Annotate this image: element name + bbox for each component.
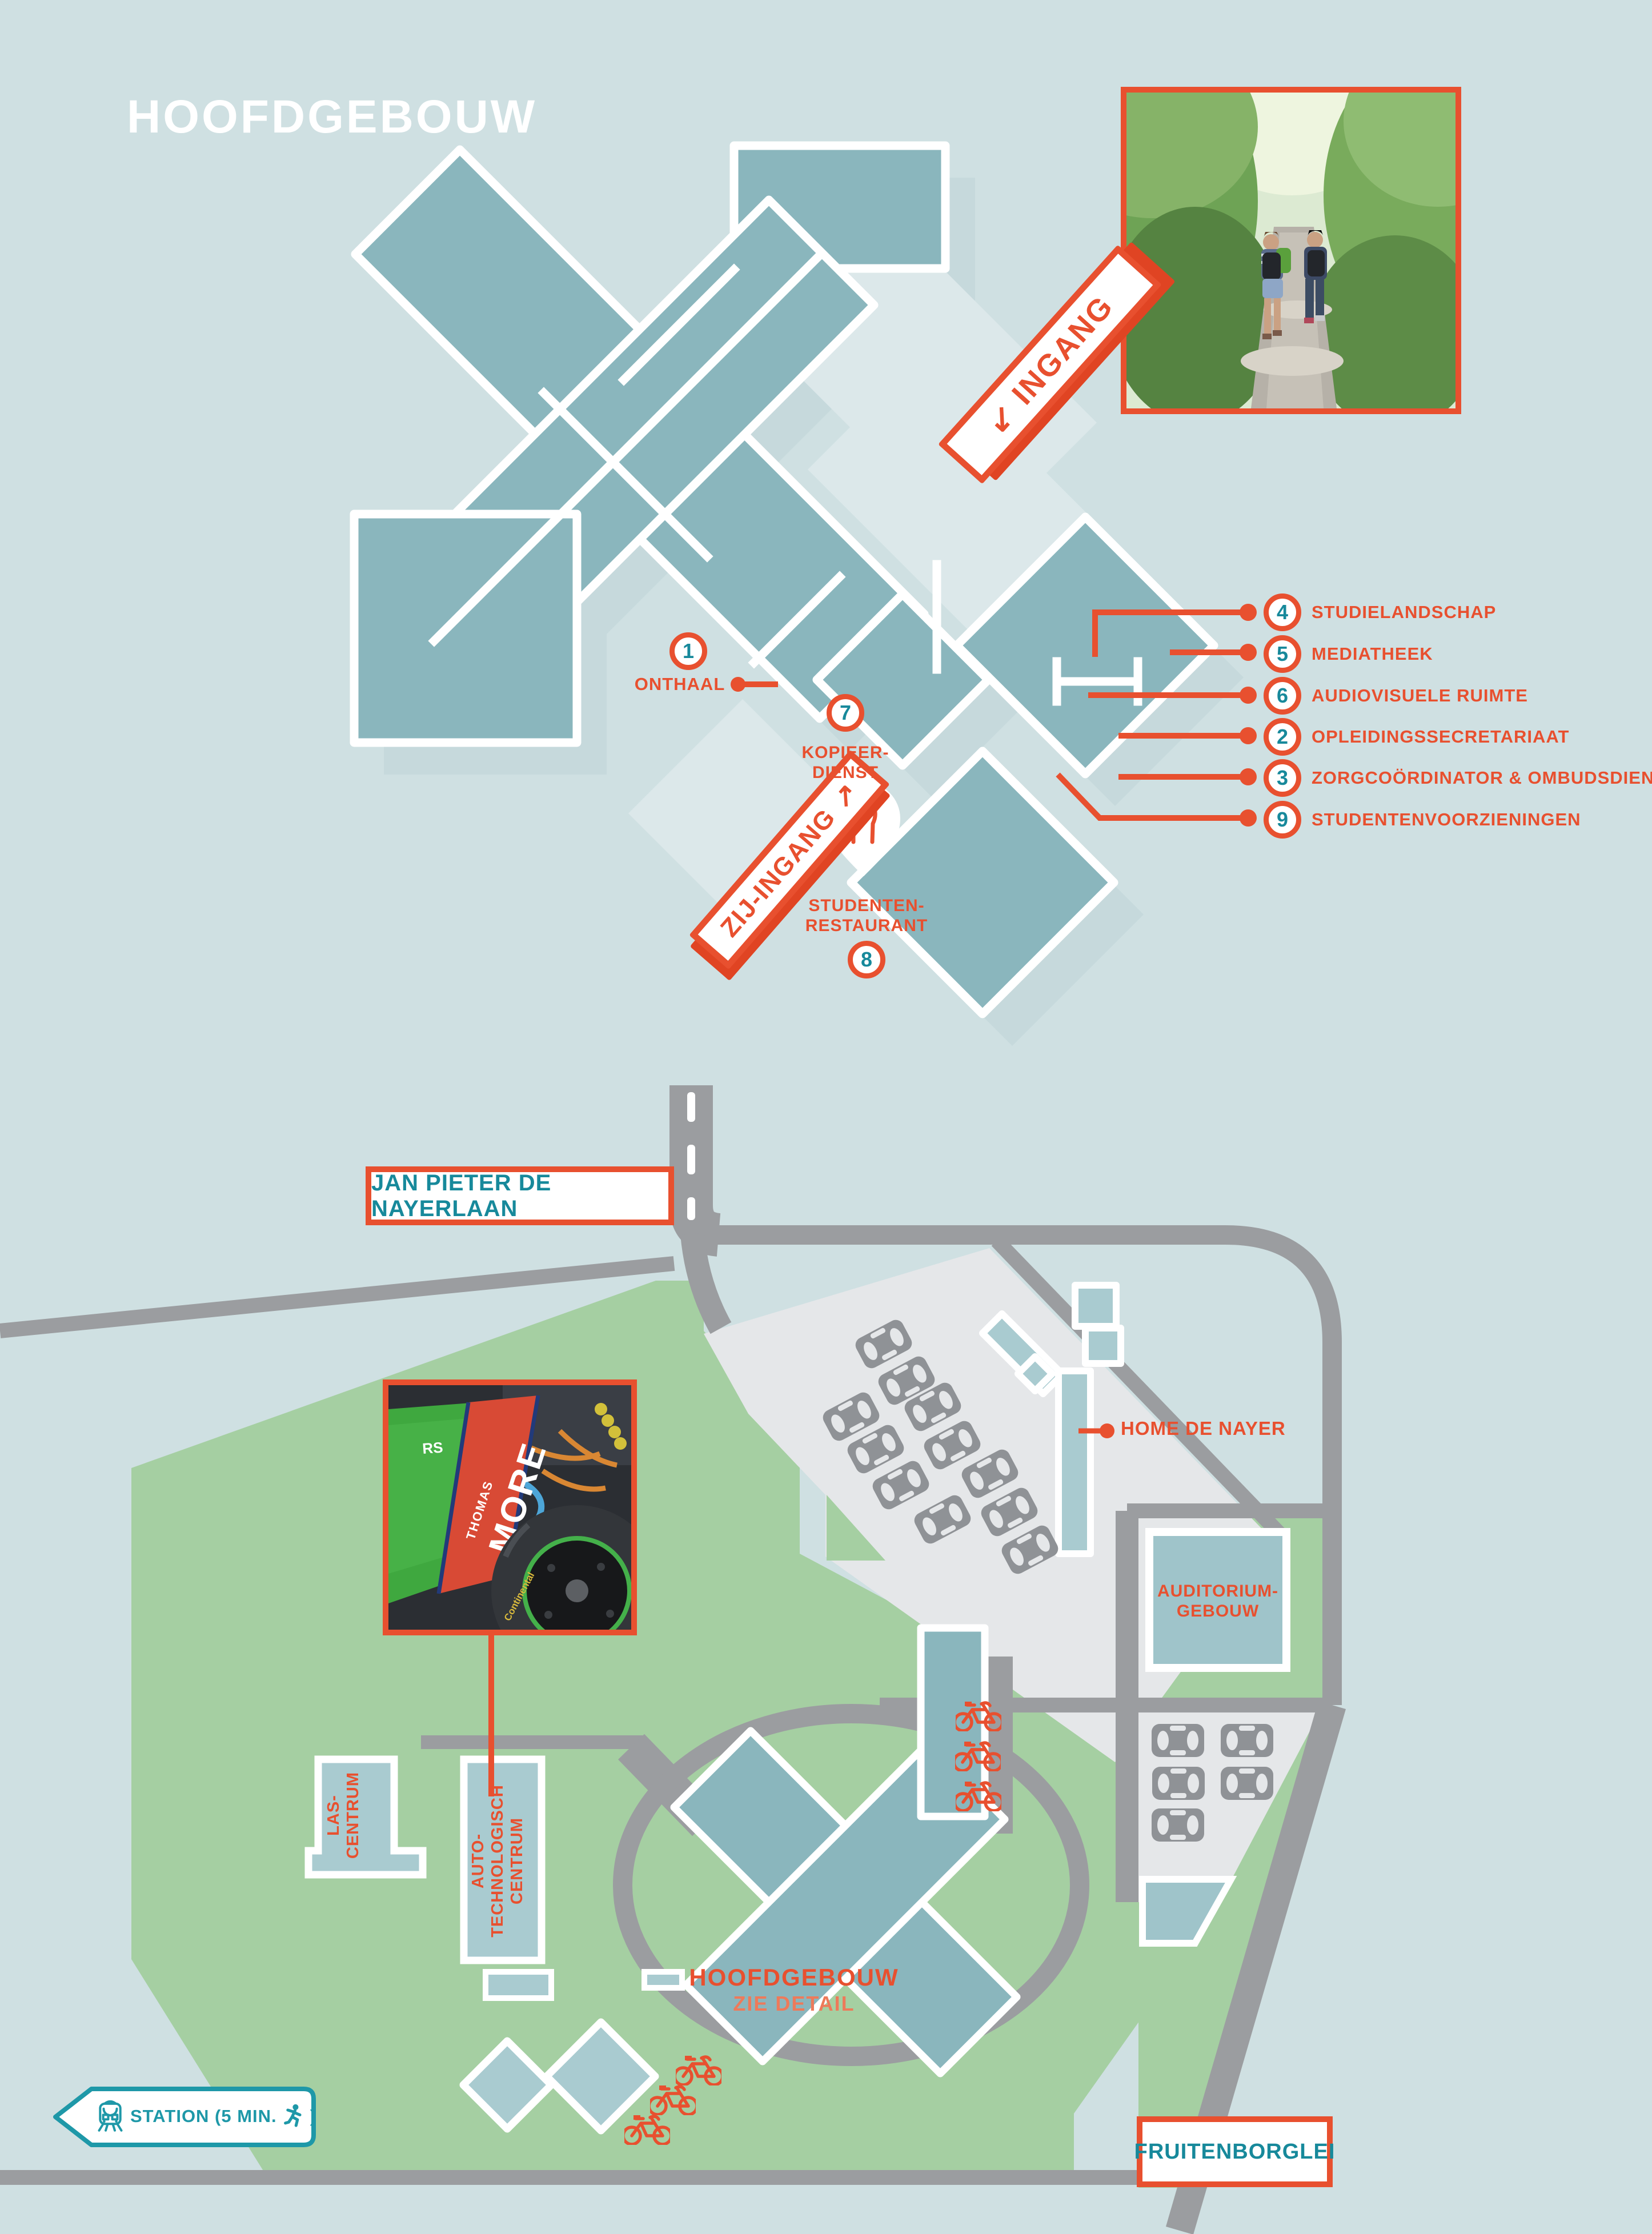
campus-path-photo-art xyxy=(1126,93,1455,408)
legend-label: STUDIELANDSCHAP xyxy=(1312,602,1496,623)
hoofdgebouw-line1: HOOFDGEBOUW xyxy=(651,1963,937,1992)
hoofdgebouw-map-label: HOOFDGEBOUW ZIE DETAIL xyxy=(651,1963,937,2016)
legend-item-zorgcoordinator: 3 ZORGCOÖRDINATOR & OMBUDSDIENST xyxy=(1264,759,1652,797)
legend-number: 5 xyxy=(1264,635,1301,673)
auditorium-label: AUDITORIUM- GEBOUW xyxy=(1149,1581,1286,1622)
marker-restaurant-label: STUDENTEN- RESTAURANT xyxy=(769,896,964,936)
legend-number: 9 xyxy=(1264,801,1301,839)
restaurant-line2: RESTAURANT xyxy=(769,916,964,936)
restaurant-line1: STUDENTEN- xyxy=(769,896,964,916)
street-sign-text: FRUITENBORGLEI xyxy=(1134,2140,1336,2164)
auditorium-line1: AUDITORIUM- xyxy=(1149,1581,1286,1601)
street-sign-fruitenborglei: FRUITENBORGLEI xyxy=(1137,2116,1333,2187)
legend-item-opleidingssecretariaat: 2 OPLEIDINGSSECRETARIAAT xyxy=(1264,718,1569,756)
kopieerdienst-line2: DIENST xyxy=(760,763,931,783)
legend-label: MEDIATHEEK xyxy=(1312,644,1433,664)
legend-item-mediatheek: 5 MEDIATHEEK xyxy=(1264,635,1433,673)
marker-kopieerdienst-number: 7 xyxy=(827,694,864,732)
racecar-photo-art: RS THOMAS MORE Continental xyxy=(388,1385,631,1630)
legend-label: OPLEIDINGSSECRETARIAAT xyxy=(1312,727,1569,747)
legend-label: AUDIOVISUELE RUIMTE xyxy=(1312,685,1528,706)
atc-line1: AUTO- xyxy=(468,1761,488,1961)
atc-line2: TECHNOLOGISCH xyxy=(488,1761,507,1961)
legend-label: ZORGCOÖRDINATOR & OMBUDSDIENST xyxy=(1312,768,1652,788)
station-sign-text: STATION (5 MIN. xyxy=(130,2106,277,2127)
running-person-icon xyxy=(284,2104,303,2129)
station-sign-suffix: ) xyxy=(310,2106,316,2127)
street-sign-text: JAN PIETER DE NAYERLAAN xyxy=(371,1170,668,1222)
marker-onthaal-number: 1 xyxy=(669,632,707,670)
auditorium-line2: GEBOUW xyxy=(1149,1601,1286,1621)
legend-number: 2 xyxy=(1264,718,1301,756)
station-sign-content: STATION (5 MIN. ) xyxy=(97,2100,316,2133)
las-line2: CENTRUM xyxy=(343,1730,363,1901)
legend-number: 4 xyxy=(1264,593,1301,631)
home-de-nayer-dot xyxy=(1100,1423,1114,1438)
train-icon xyxy=(97,2100,123,2132)
kopieerdienst-line1: KOPIEER- xyxy=(760,743,931,763)
legend-label: STUDENTENVOORZIENINGEN xyxy=(1312,809,1581,830)
street-sign-jan-pieter-de-nayerlaan: JAN PIETER DE NAYERLAAN xyxy=(366,1166,674,1225)
campus-path-photo xyxy=(1121,87,1461,414)
arrow-down-left-icon: ↙ xyxy=(978,395,1025,441)
racecar-photo: RS THOMAS MORE Continental xyxy=(383,1379,637,1635)
marker-onthaal-label: ONTHAAL xyxy=(623,674,737,695)
legend-number: 6 xyxy=(1264,677,1301,715)
marker-kopieerdienst-label: KOPIEER- DIENST xyxy=(760,743,931,783)
las-line1: LAS- xyxy=(324,1730,343,1901)
marker-restaurant-number: 8 xyxy=(848,941,885,978)
campus-map-graphic xyxy=(0,1085,1652,2234)
rs-logo-text: RS xyxy=(422,1439,443,1457)
campus-map-poster: HOOFDGEBOUW xyxy=(0,0,1652,2234)
legend-item-studentenvoorzieningen: 9 STUDENTENVOORZIENINGEN xyxy=(1264,801,1581,839)
las-centrum-label: LAS- CENTRUM xyxy=(324,1730,381,1901)
legend-item-audiovisuele-ruimte: 6 AUDIOVISUELE RUIMTE xyxy=(1264,677,1528,715)
legend-number: 3 xyxy=(1264,759,1301,797)
page-title: HOOFDGEBOUW xyxy=(127,90,537,144)
legend-item-studielandschap: 4 STUDIELANDSCHAP xyxy=(1264,593,1496,631)
atc-line3: CENTRUM xyxy=(507,1761,527,1961)
auto-technologisch-centrum-label: AUTO- TECHNOLOGISCH CENTRUM xyxy=(468,1761,537,1961)
hoofdgebouw-line2: ZIE DETAIL xyxy=(651,1992,937,2016)
home-de-nayer-label: HOME DE NAYER xyxy=(1121,1418,1286,1440)
street-center-dashes xyxy=(687,1092,695,1220)
